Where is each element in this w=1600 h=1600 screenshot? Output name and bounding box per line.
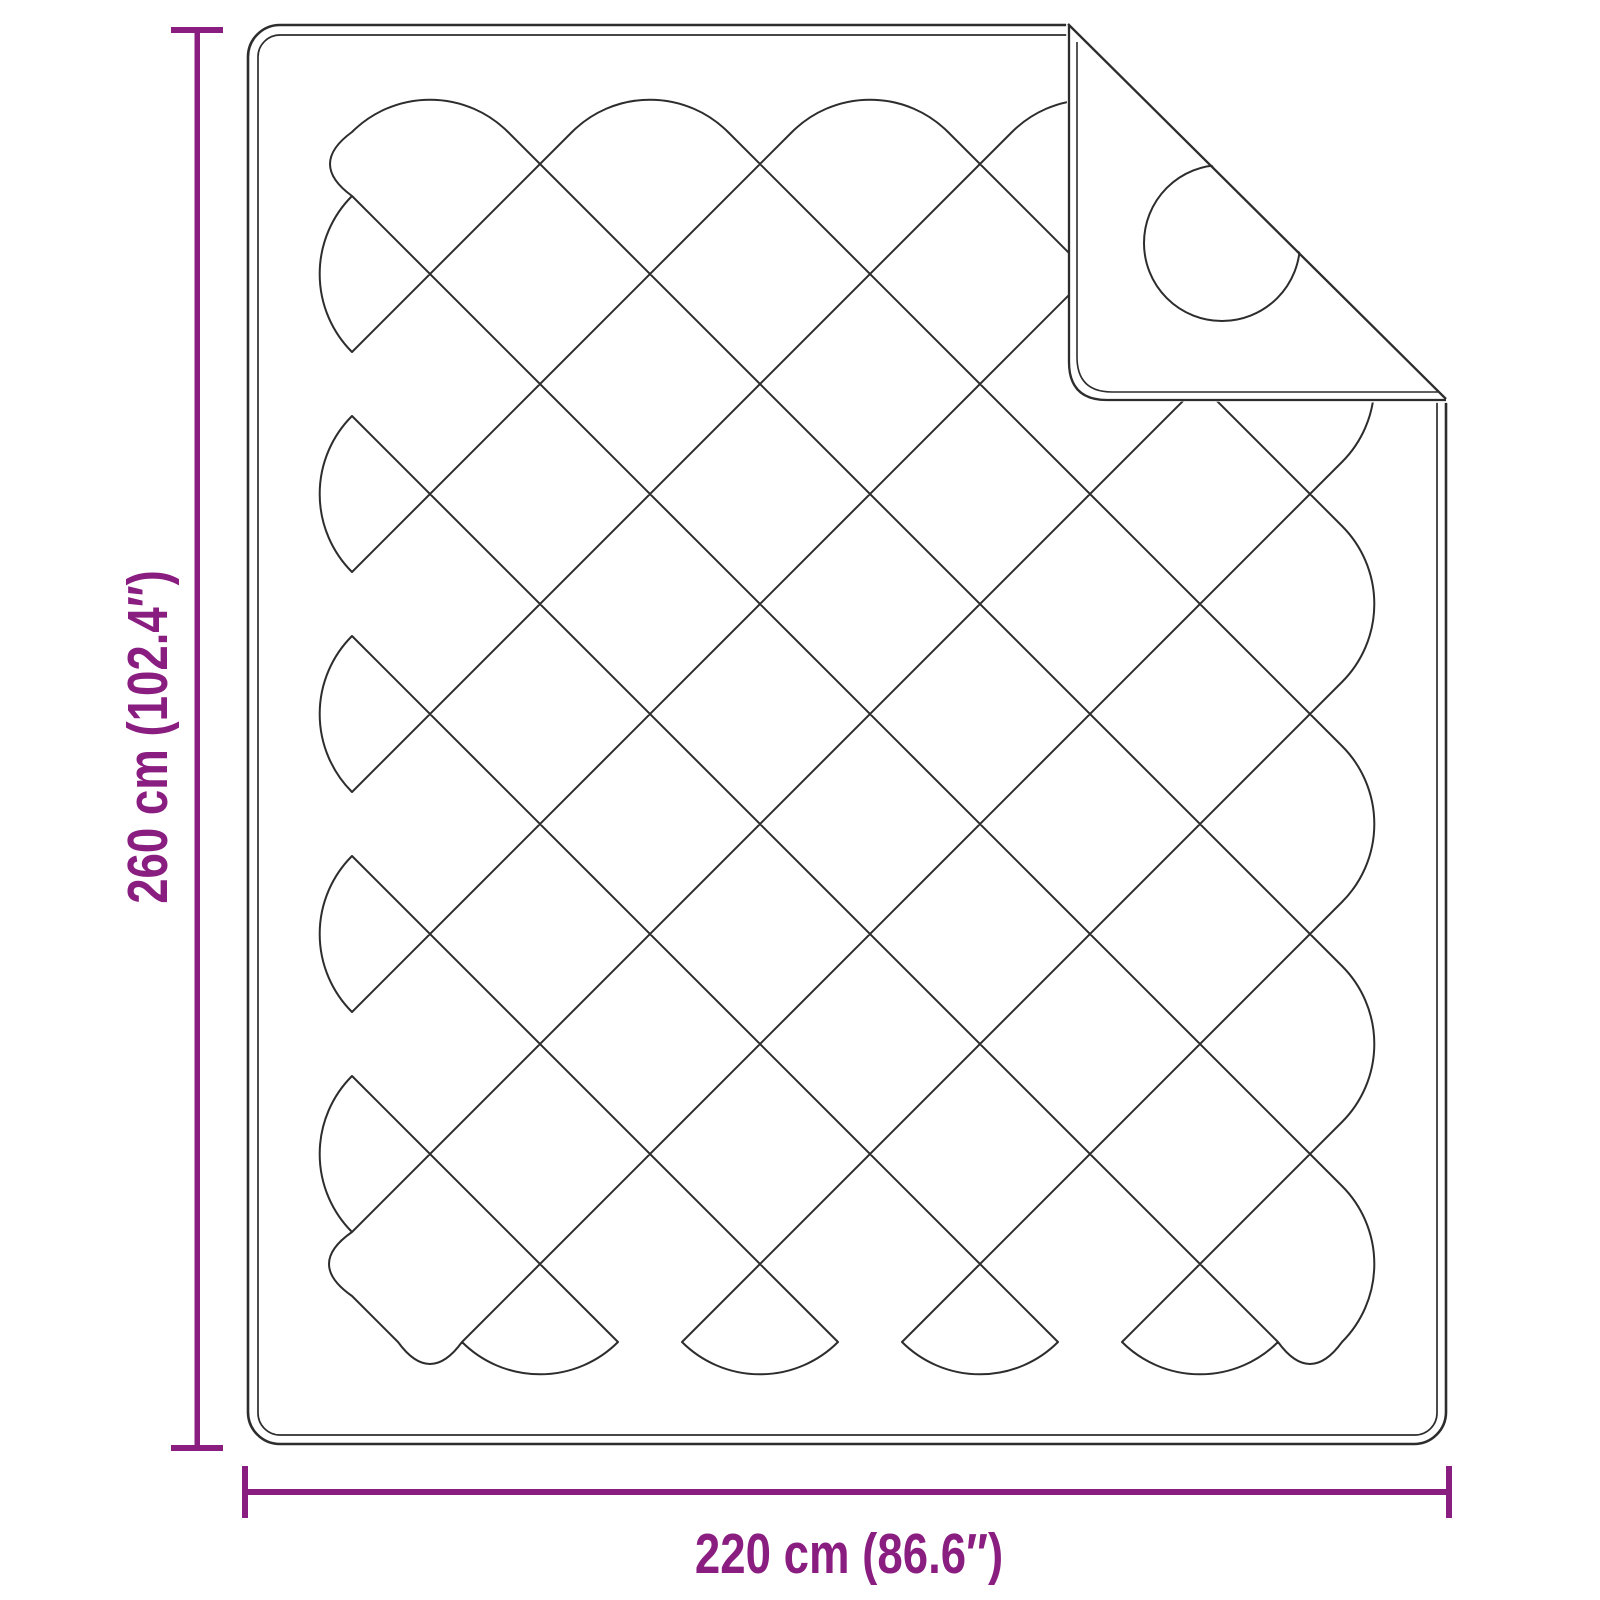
- width-dimension: 220 cm (86.6″): [242, 1466, 1452, 1585]
- height-dimension-line: [195, 30, 201, 1449]
- width-dimension-left-cap: [242, 1466, 248, 1518]
- height-dimension-bottom-cap: [171, 1445, 223, 1451]
- blanket-inner-seam: [258, 35, 1437, 1435]
- height-dimension-label: 260 cm (102.4″): [115, 570, 179, 904]
- blanket-outer-edge: [248, 25, 1446, 1444]
- height-dimension: 260 cm (102.4″): [115, 27, 223, 1451]
- diagram-canvas: 260 cm (102.4″) 220 cm (86.6″): [0, 0, 1600, 1600]
- width-dimension-label: 220 cm (86.6″): [695, 1521, 1003, 1585]
- quilt-pattern: [320, 100, 1375, 1375]
- folded-corner: [1068, 24, 1446, 400]
- folded-corner-inner-seam: [1077, 42, 1438, 392]
- blanket-dimension-diagram: 260 cm (102.4″) 220 cm (86.6″): [0, 0, 1600, 1600]
- width-dimension-right-cap: [1446, 1466, 1452, 1518]
- fold-crease-line: [1068, 24, 1446, 399]
- height-dimension-top-cap: [171, 27, 223, 33]
- folded-corner-quilt-circle: [1144, 165, 1300, 321]
- blanket: [248, 25, 1446, 1444]
- width-dimension-line: [245, 1489, 1449, 1495]
